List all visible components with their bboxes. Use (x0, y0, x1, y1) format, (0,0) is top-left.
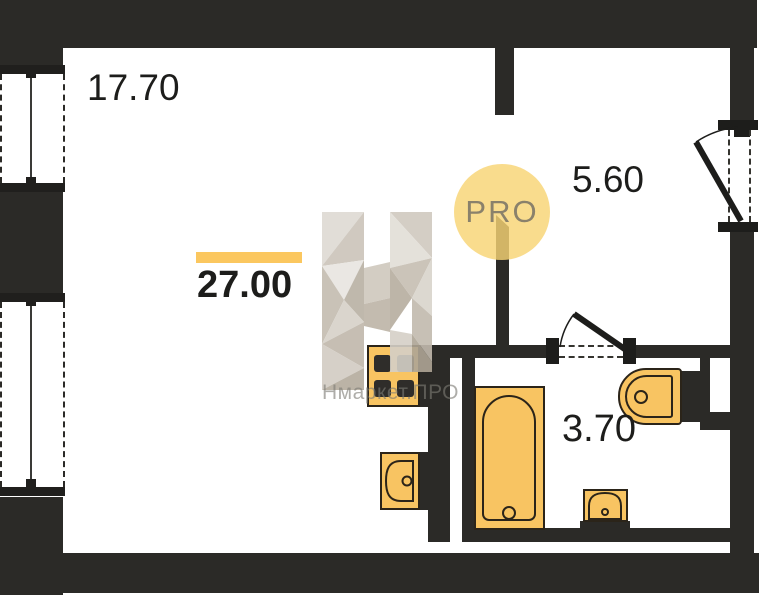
brand-watermark-text: Нмаркет.ПРО (322, 381, 459, 405)
pro-watermark-badge: PRO (454, 164, 550, 260)
floor-plan: 17.70 5.60 3.70 27.00 Нмаркет.ПРО PRO (0, 0, 759, 600)
total-area-accent-bar (196, 252, 302, 263)
entry-door-swing-arc (696, 127, 738, 142)
kitchen-sink-drain (403, 477, 412, 486)
wash-basin-drain (602, 509, 608, 515)
h-logo-watermark-icon (322, 212, 434, 394)
total-area-label: 27.00 (197, 264, 292, 307)
pro-watermark-label: PRO (465, 194, 538, 230)
bathroom-door-swing-arc (560, 314, 574, 347)
room-area-label-hallway: 5.60 (572, 159, 644, 201)
kitchen-sink-bowl (386, 461, 413, 501)
room-area-label-living: 17.70 (87, 67, 180, 109)
entry-door-leaf (696, 142, 741, 221)
room-area-label-bathroom: 3.70 (562, 408, 636, 451)
bathroom-door-leaf (574, 314, 629, 352)
